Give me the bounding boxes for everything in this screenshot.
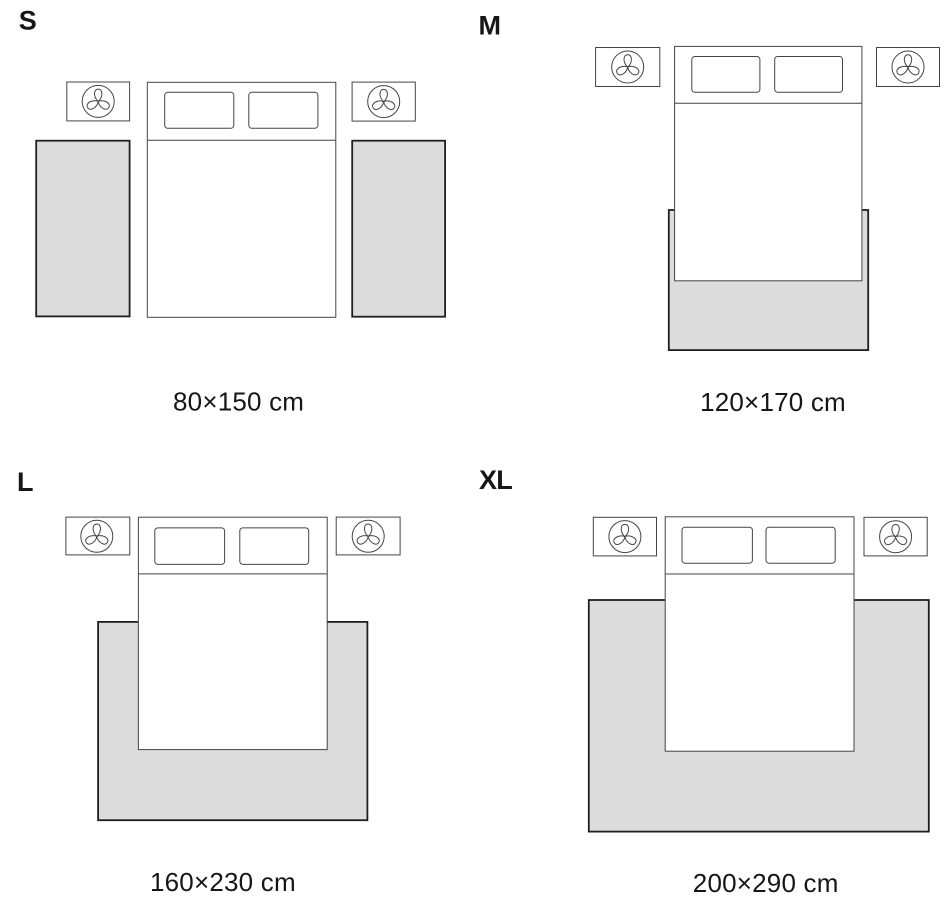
svg-text:M: M (479, 11, 502, 41)
svg-text:XL: XL (479, 465, 512, 495)
svg-text:S: S (19, 6, 37, 36)
svg-text:200×290 cm: 200×290 cm (693, 868, 839, 898)
svg-text:160×230 cm: 160×230 cm (150, 867, 296, 897)
svg-text:80×150 cm: 80×150 cm (173, 386, 304, 416)
svg-text:120×170 cm: 120×170 cm (700, 387, 846, 417)
svg-text:L: L (17, 467, 34, 497)
